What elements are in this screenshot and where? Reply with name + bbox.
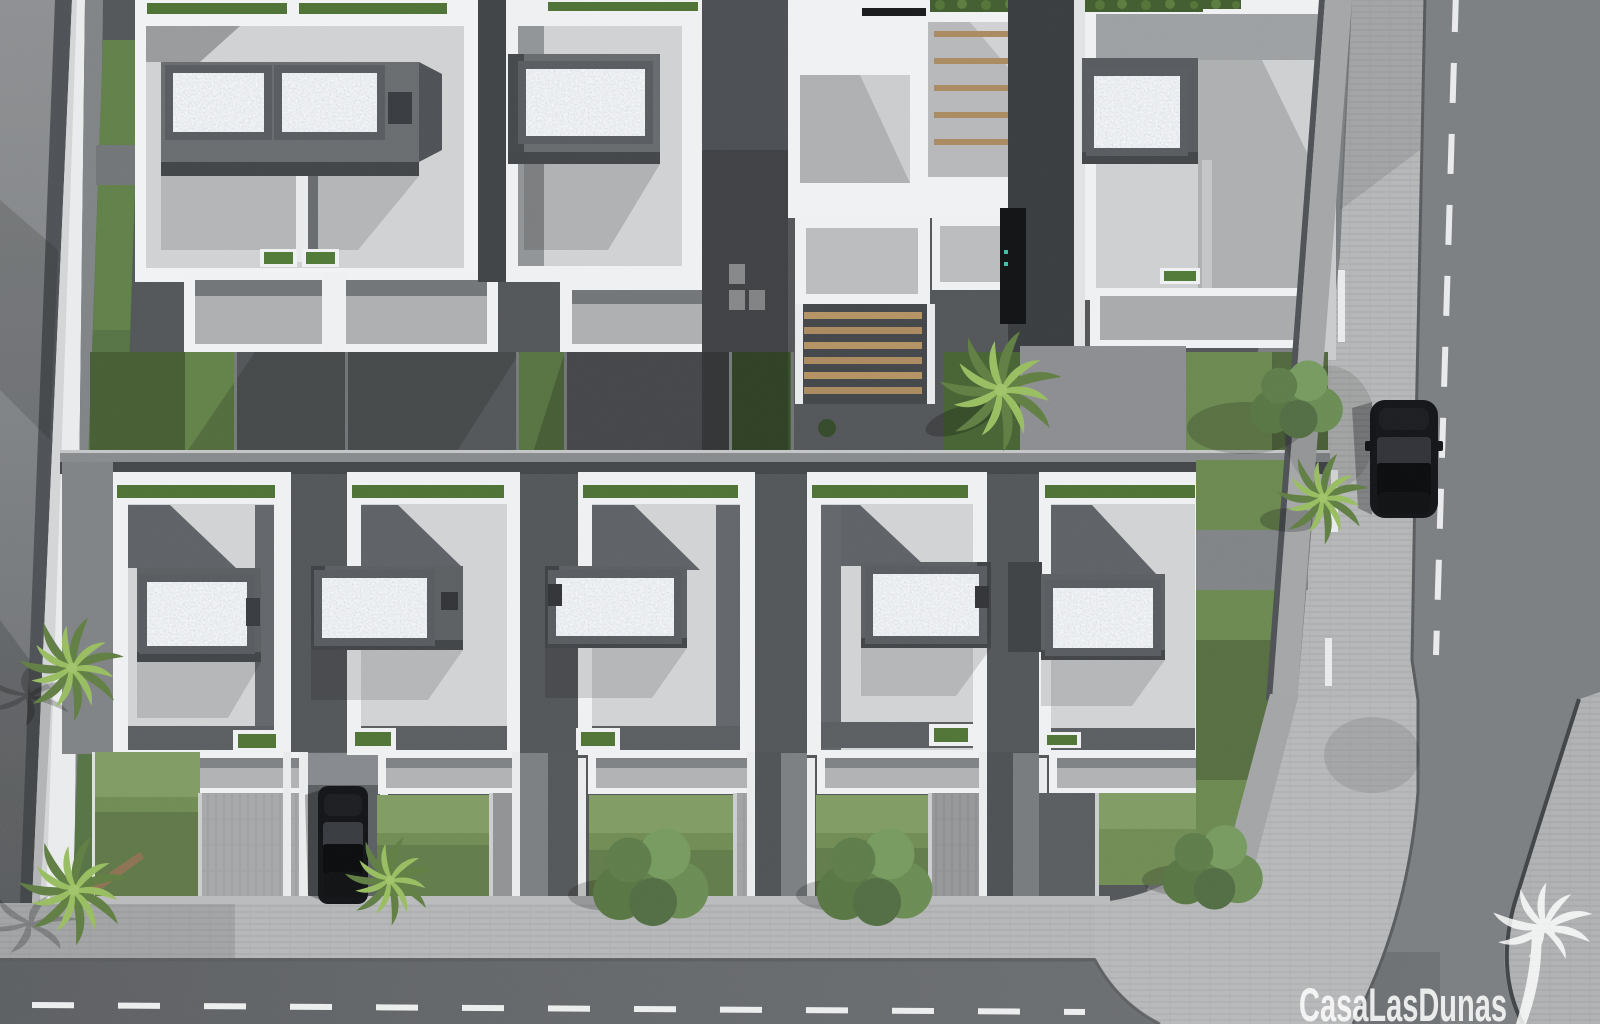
svg-text:CasaLasDunas: CasaLasDunas xyxy=(1299,978,1507,1024)
